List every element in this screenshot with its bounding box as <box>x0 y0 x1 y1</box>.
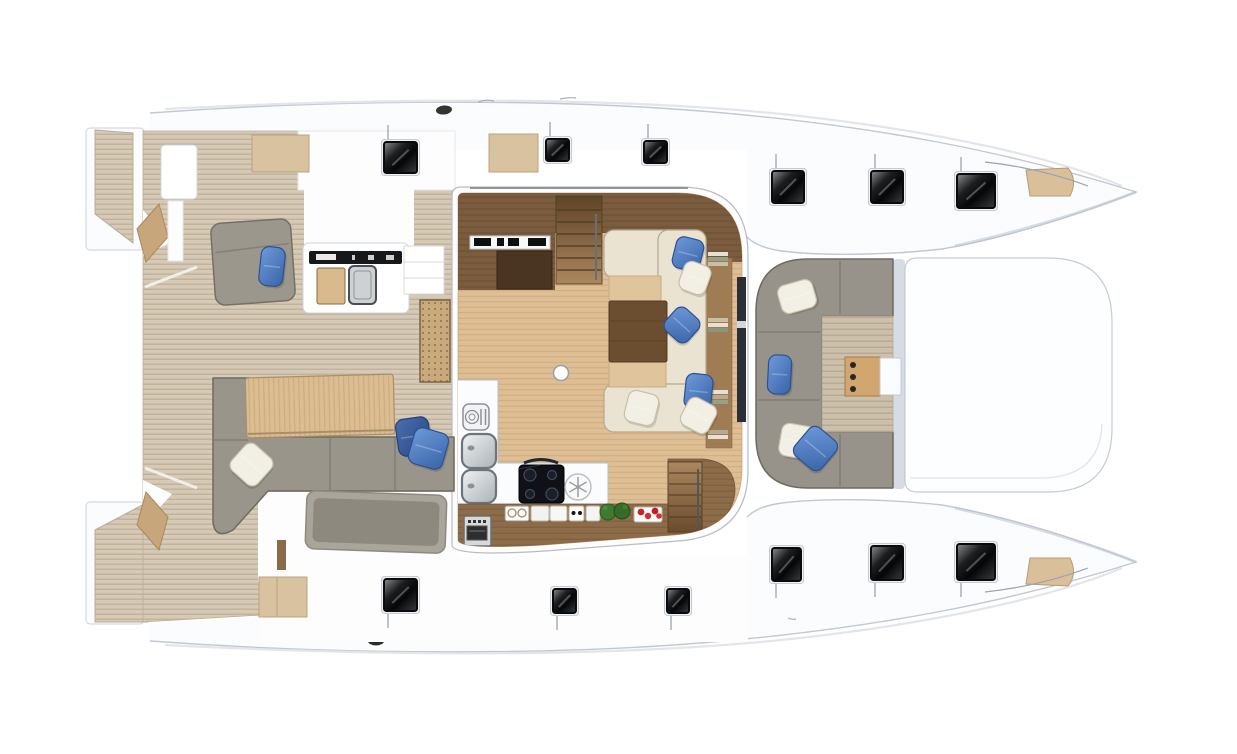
deck-locker-coachroof <box>489 134 538 172</box>
wetbar-apron <box>304 188 414 246</box>
aft-cockpit-table <box>245 374 395 438</box>
bow-seat-top <box>1026 168 1074 196</box>
cooktop <box>519 460 564 504</box>
aft-bench-aft <box>305 491 447 554</box>
deck-locker-aft-bottom <box>259 577 307 617</box>
forward-cockpit-table <box>845 357 901 396</box>
dishwasher-icon <box>463 404 489 430</box>
foredeck <box>905 258 1112 492</box>
cutting-board <box>317 268 345 304</box>
dinette-table <box>609 301 667 362</box>
salon-front-window <box>737 277 746 422</box>
pillow-blue <box>258 246 288 289</box>
stern-console-strip <box>168 201 183 261</box>
bow-seat-bottom <box>1026 558 1074 586</box>
nav-desk <box>497 251 552 289</box>
aft-step-strip <box>277 540 286 570</box>
vent-fan-icon <box>565 474 591 500</box>
deck-plan-canvas: catamaran-deck-plan-top-view <box>0 0 1237 754</box>
stern-console-top <box>161 145 197 199</box>
stairs-port <box>556 196 602 284</box>
dinette-cushion-bottom <box>609 361 666 387</box>
stairs-starboard <box>668 462 702 532</box>
food-dish <box>634 507 662 522</box>
wetbar-sink <box>349 266 376 304</box>
pillow-blue <box>767 354 794 396</box>
door-mat <box>420 300 450 382</box>
salon <box>452 187 748 553</box>
coachroof-top-deck <box>298 131 455 190</box>
nav-instruments <box>474 238 546 246</box>
deck-plan-drawing <box>0 0 1237 754</box>
wetbar-shelves <box>404 246 444 294</box>
deck-locker-aft-top <box>252 135 309 172</box>
foredeck-platform <box>905 258 1112 492</box>
oven <box>464 516 491 546</box>
dinette-cushion-top <box>609 276 661 303</box>
table-pedestal-mount <box>554 366 569 381</box>
